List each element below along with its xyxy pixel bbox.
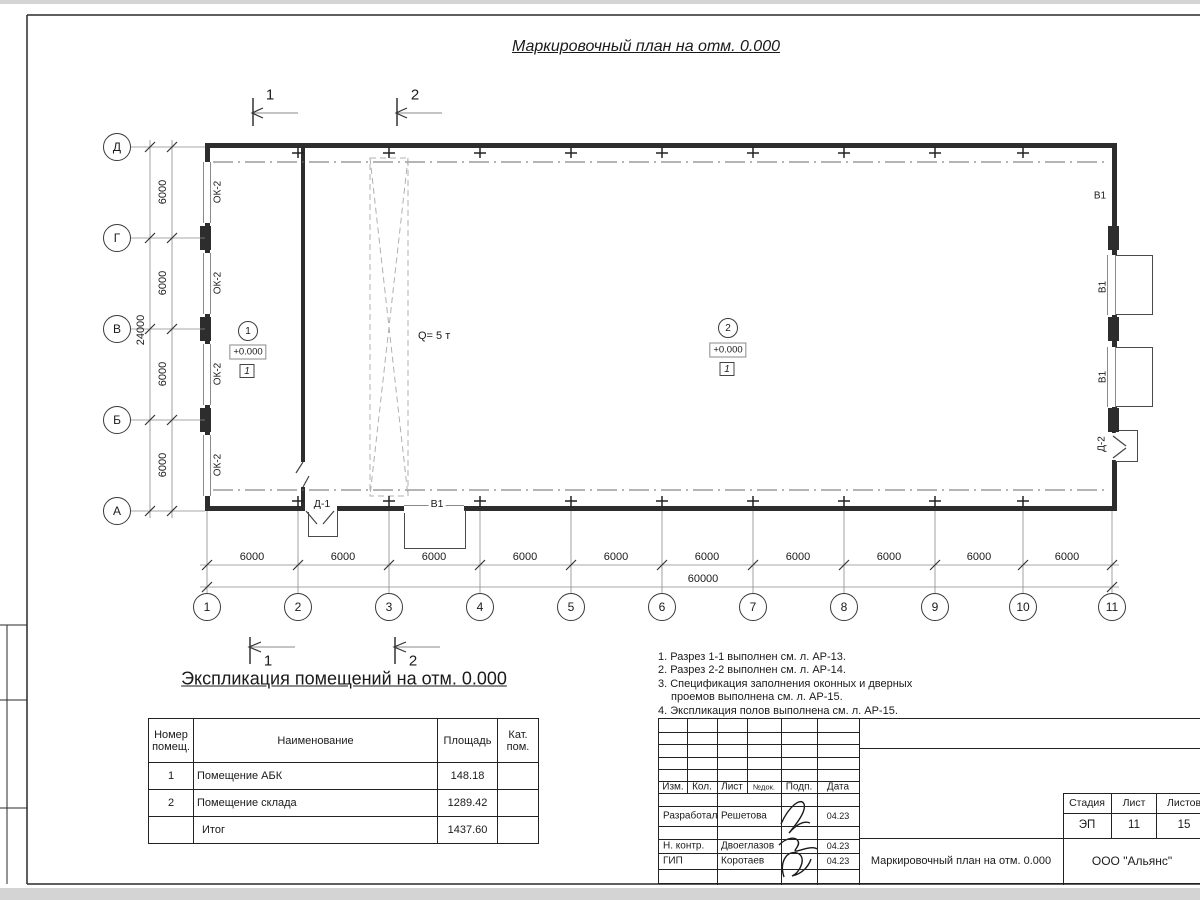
room-area: 148.18	[438, 763, 498, 790]
pilaster-right-v	[1108, 317, 1119, 341]
dim-row-1: 6000	[157, 180, 169, 204]
section-2-top-label: 2	[411, 87, 419, 104]
gate-bottom-label: В1	[429, 498, 446, 510]
col-header-area: Площадь	[438, 719, 498, 763]
gate-right-label-3: В1	[1098, 371, 1109, 383]
room-cat	[498, 763, 539, 790]
window-ok2-4	[203, 435, 211, 496]
dim-total-height: 24000	[135, 315, 147, 346]
room-name: Помещение АБК	[194, 763, 438, 790]
dim-row-2: 6000	[157, 271, 169, 295]
drawing-sheet: Маркировочный план на отм. 0.000	[0, 0, 1200, 900]
tb-name-ncontrol: Двоеглазов	[721, 841, 774, 852]
window-ok2-2	[203, 253, 211, 314]
tb-date-ncontrol: 04.23	[827, 841, 850, 851]
pilaster-left-g	[200, 226, 211, 250]
axis-bubble-g: Г	[103, 224, 131, 252]
room-area: 1437.60	[438, 817, 498, 844]
dim-bay-1: 6000	[240, 551, 264, 563]
axis-bubble-b: Б	[103, 406, 131, 434]
pilaster-right-g	[1108, 226, 1119, 250]
sheet-title: Маркировочный план на отм. 0.000	[512, 38, 780, 56]
dim-bay-4: 6000	[513, 551, 537, 563]
grid-bubble-4: 4	[466, 593, 494, 621]
tb-col-kol: Кол.	[692, 782, 712, 793]
axis-bubble-a: А	[103, 497, 131, 525]
table-row: Итог 1437.60	[149, 817, 539, 844]
window-ok2-3	[203, 344, 211, 405]
table-row: 2 Помещение склада 1289.42	[149, 790, 539, 817]
porch-d1	[308, 510, 338, 537]
dim-bay-10: 6000	[1055, 551, 1079, 563]
room-num: 2	[149, 790, 194, 817]
window-label-1: ОК-2	[213, 181, 224, 204]
building-outline	[205, 143, 1117, 511]
room-2-number: 2	[718, 318, 738, 338]
note-line: 4. Экспликация полов выполнена см. л. АР…	[658, 705, 912, 718]
section-1-bottom-label: 1	[264, 653, 272, 670]
tb-col-dok: №док.	[753, 783, 775, 792]
dock-right-1	[1115, 255, 1153, 315]
table-row: 1 Помещение АБК 148.18	[149, 763, 539, 790]
room-name: Помещение склада	[194, 790, 438, 817]
door-d2-label: Д-2	[1097, 436, 1108, 452]
door-d1-label: Д-1	[312, 498, 332, 510]
window-label-2: ОК-2	[213, 272, 224, 295]
tb-sheets-value: 15	[1178, 819, 1191, 831]
grid-bubble-11: 11	[1098, 593, 1126, 621]
pilaster-left-v	[200, 317, 211, 341]
door-d2-opening	[1110, 433, 1117, 460]
tb-col-data: Дата	[827, 782, 849, 793]
axis-bubble-v: В	[103, 315, 131, 343]
room-cat	[498, 790, 539, 817]
dim-row-3: 6000	[157, 362, 169, 386]
dim-bay-6: 6000	[695, 551, 719, 563]
tb-stage-value: ЭП	[1079, 819, 1096, 831]
room-2-elevation: +0.000	[709, 343, 746, 358]
pilaster-right-b	[1108, 408, 1119, 432]
tb-date-gip: 04.23	[827, 856, 850, 866]
section-2-bottom-label: 2	[409, 653, 417, 670]
dim-bay-2: 6000	[331, 551, 355, 563]
dim-bay-3: 6000	[422, 551, 446, 563]
gate-right-label-1: В1	[1094, 191, 1106, 202]
tb-name-gip: Коротаев	[721, 856, 764, 867]
note-line: 1. Разрез 1-1 выполнен см. л. АР-13.	[658, 651, 912, 664]
tb-col-list: Лист	[721, 782, 743, 793]
grid-bubble-1: 1	[193, 593, 221, 621]
grid-bubble-2: 2	[284, 593, 312, 621]
room-name: Итог	[194, 817, 438, 844]
partition-wall-lower	[301, 487, 305, 507]
dim-total-width: 60000	[688, 573, 719, 585]
tb-sheet-label: Лист	[1123, 797, 1146, 809]
dim-bay-5: 6000	[604, 551, 628, 563]
grid-bubble-7: 7	[739, 593, 767, 621]
ramp-bottom	[404, 510, 466, 549]
room-1-elevation: +0.000	[229, 345, 266, 360]
tb-sheets-label: Листов	[1167, 797, 1200, 809]
schedule-heading: Экспликация помещений на отм. 0.000	[181, 669, 507, 690]
room-2-floor-type: 1	[720, 362, 735, 376]
notes-list: 1. Разрез 1-1 выполнен см. л. АР-13. 2. …	[658, 651, 912, 718]
title-block: Изм. Кол. Лист №док. Подп. Дата Разработ…	[658, 718, 1200, 884]
col-header-name: Наименование	[194, 719, 438, 763]
grid-bubble-3: 3	[375, 593, 403, 621]
dim-row-4: 6000	[157, 453, 169, 477]
note-line: 2. Разрез 2-2 выполнен см. л. АР-14.	[658, 664, 912, 677]
note-line: проемов выполнена см. л. АР-15.	[658, 691, 912, 704]
grid-bubble-9: 9	[921, 593, 949, 621]
room-area: 1289.42	[438, 790, 498, 817]
window-ok2-1	[203, 162, 211, 223]
tb-date-developer: 04.23	[827, 811, 850, 821]
grid-bubble-8: 8	[830, 593, 858, 621]
crane-capacity-label: Q= 5 т	[418, 330, 450, 342]
room-cat	[498, 817, 539, 844]
tb-name-developer: Решетова	[721, 811, 767, 822]
room-schedule-table: Номер помещ. Наименование Площадь Кат. п…	[148, 718, 539, 844]
grid-bubble-6: 6	[648, 593, 676, 621]
tb-stage-label: Стадия	[1069, 797, 1105, 809]
room-1-number: 1	[238, 321, 258, 341]
tb-role-developer: Разработал	[663, 811, 717, 822]
dock-right-2	[1115, 347, 1153, 407]
col-header-number: Номер помещ.	[149, 719, 194, 763]
dim-bay-7: 6000	[786, 551, 810, 563]
tb-company: ООО "Альянс"	[1092, 854, 1172, 868]
tb-doc-title: Маркировочный план на отм. 0.000	[871, 855, 1051, 867]
porch-d2	[1115, 430, 1138, 462]
note-line: 3. Спецификация заполнения оконных и две…	[658, 678, 912, 691]
dim-bay-9: 6000	[967, 551, 991, 563]
section-1-top-label: 1	[266, 87, 274, 104]
partition-wall-upper	[301, 147, 305, 462]
dim-bay-8: 6000	[877, 551, 901, 563]
tb-role-ncontrol: Н. контр.	[663, 841, 704, 852]
tb-sheet-value: 11	[1128, 819, 1140, 831]
gate-right-label-2: В1	[1098, 281, 1109, 293]
pilaster-left-b	[200, 408, 211, 432]
grid-bubble-10: 10	[1009, 593, 1037, 621]
room-num: 1	[149, 763, 194, 790]
room-num	[149, 817, 194, 844]
window-label-3: ОК-2	[213, 363, 224, 386]
axis-bubble-d: Д	[103, 133, 131, 161]
col-header-category: Кат. пом.	[498, 719, 539, 763]
window-label-4: ОК-2	[213, 454, 224, 477]
tb-col-izm: Изм.	[662, 782, 683, 793]
tb-role-gip: ГИП	[663, 856, 683, 867]
tb-col-podp: Подп.	[786, 782, 813, 793]
room-1-floor-type: 1	[240, 364, 255, 378]
grid-bubble-5: 5	[557, 593, 585, 621]
